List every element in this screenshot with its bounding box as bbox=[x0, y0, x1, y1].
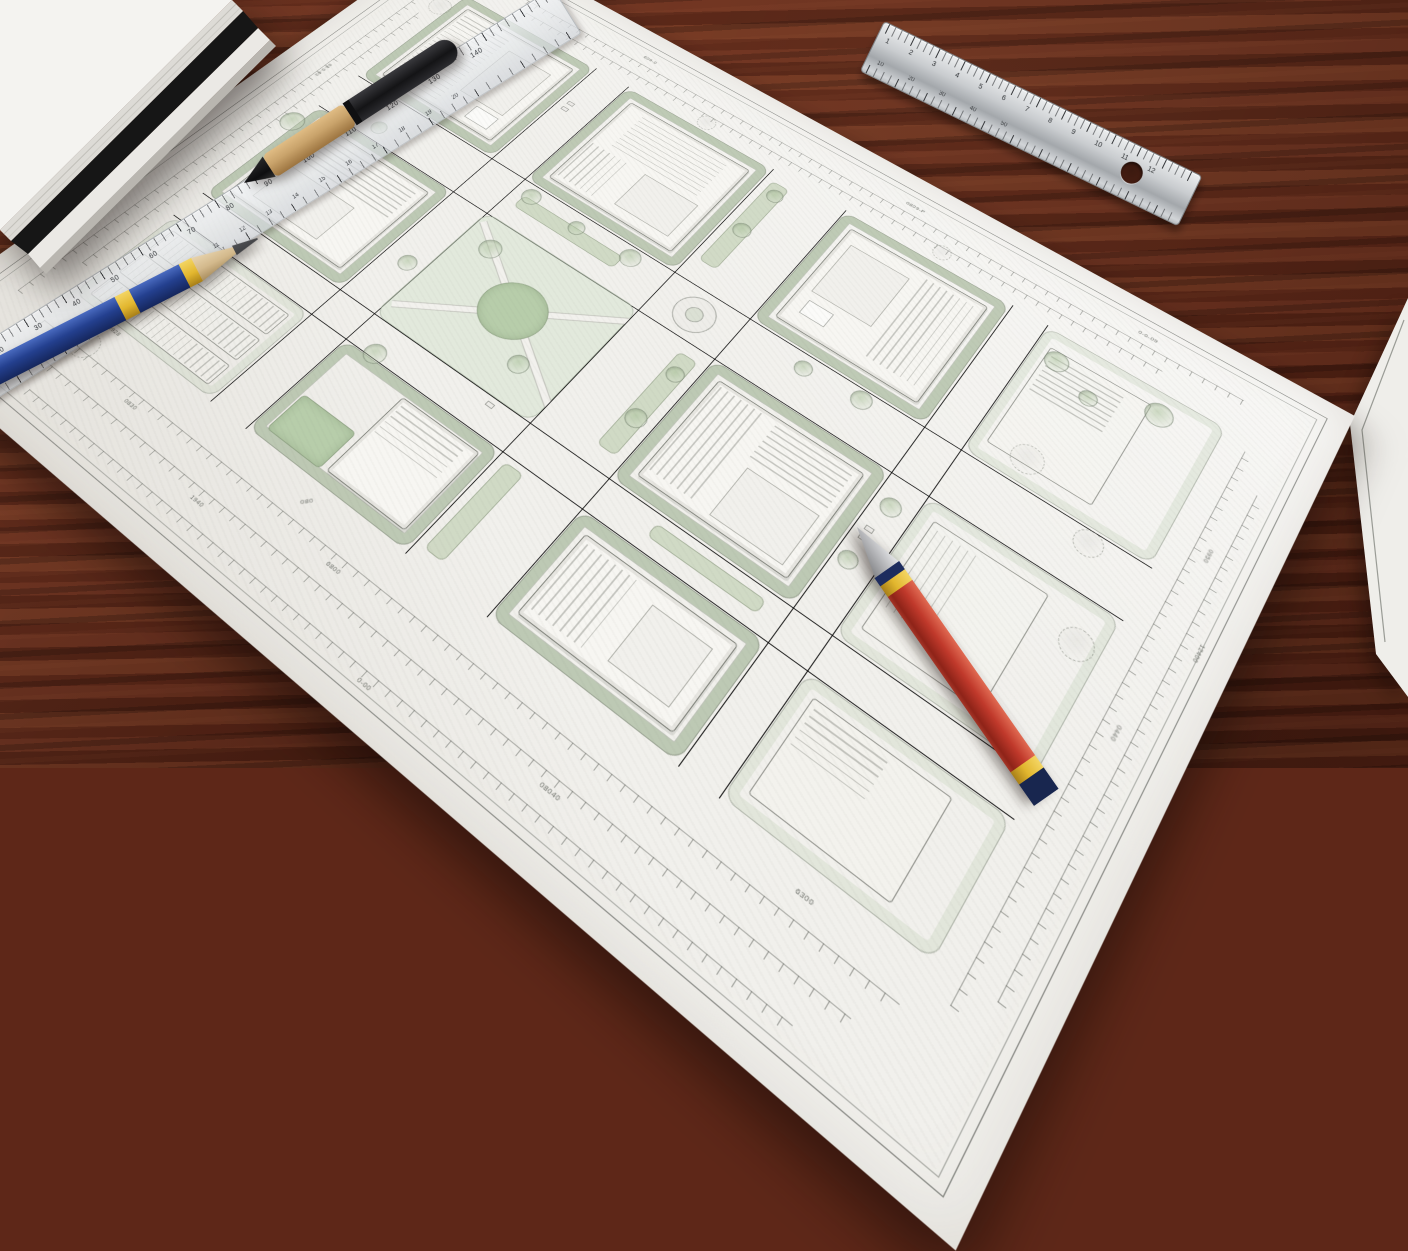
courtyard bbox=[607, 604, 713, 707]
paper-stack bbox=[0, 0, 340, 500]
park-lawn-circle bbox=[462, 271, 563, 352]
photo-canvas: { "palette": { "desk_wood": "#5e2718", "… bbox=[0, 0, 1408, 768]
building-annex bbox=[799, 300, 834, 327]
